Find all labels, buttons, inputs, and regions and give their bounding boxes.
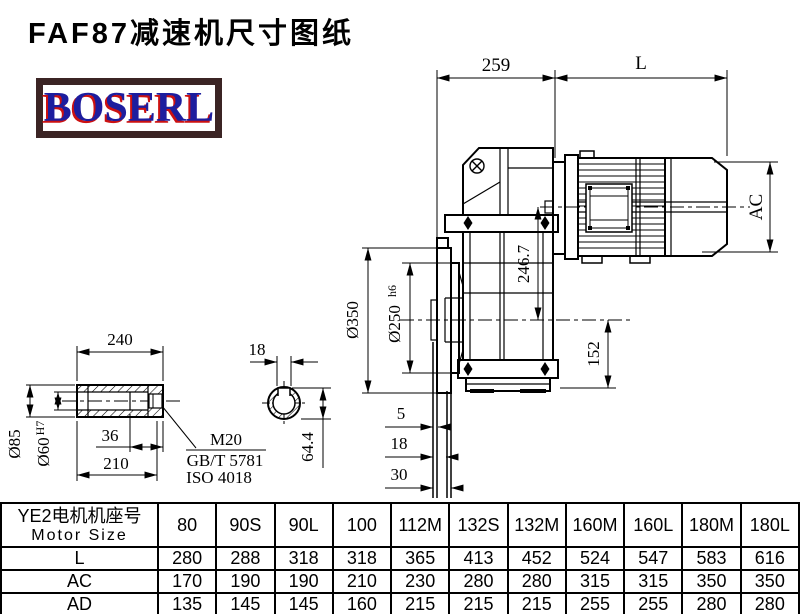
table-row: AC170190190210230280280315315350350 <box>1 570 799 593</box>
lifting-eye-icon <box>470 159 484 173</box>
table-cell: 190 <box>216 570 274 593</box>
table-column-header: 160L <box>624 503 682 547</box>
table-cell: 524 <box>566 547 624 570</box>
dim-AC: AC <box>746 194 767 220</box>
table-column-header: 180L <box>741 503 799 547</box>
table-column-header: 160M <box>566 503 624 547</box>
table-cell: 210 <box>333 570 391 593</box>
table-cell: 452 <box>508 547 566 570</box>
table-cell: 350 <box>682 570 740 593</box>
table-cell: 318 <box>275 547 333 570</box>
table-cell: 215 <box>391 593 449 614</box>
table-column-header: 132S <box>449 503 507 547</box>
table-cell: 255 <box>624 593 682 614</box>
dim-246-7: 246.7 <box>514 244 533 283</box>
table-row: L280288318318365413452524547583616 <box>1 547 799 570</box>
table-cell: 583 <box>682 547 740 570</box>
table-cell: 255 <box>566 593 624 614</box>
table-cell: 160 <box>333 593 391 614</box>
dim-keyway-width: 18 <box>249 340 266 359</box>
table-cell: 350 <box>741 570 799 593</box>
main-view-dimensions <box>362 70 778 488</box>
table-cell: 215 <box>508 593 566 614</box>
table-cell: 280 <box>682 593 740 614</box>
table-cell: 230 <box>391 570 449 593</box>
thread-label: M20 <box>210 430 242 449</box>
table-cell: 215 <box>449 593 507 614</box>
table-column-header: 90L <box>275 503 333 547</box>
table-column-header: 80 <box>158 503 216 547</box>
table-cell: 616 <box>741 547 799 570</box>
table-cell: 190 <box>275 570 333 593</box>
table-cell: 280 <box>508 570 566 593</box>
motor-nameplate <box>586 184 632 232</box>
table-column-header: 112M <box>391 503 449 547</box>
dim-flange-od: Ø350 <box>343 301 362 339</box>
table-cell: 547 <box>624 547 682 570</box>
dim-210: 210 <box>103 454 129 473</box>
table-cell: 280 <box>741 593 799 614</box>
output-shaft-hidden-lines <box>433 342 451 498</box>
dim-bore: Ø60 <box>34 437 53 466</box>
dim-152: 152 <box>584 341 603 367</box>
table-row: AD135145145160215215215255255280280 <box>1 593 799 614</box>
table-cell: 315 <box>566 570 624 593</box>
dim-bore-tol: H7 <box>33 421 47 436</box>
table-cell: 135 <box>158 593 216 614</box>
bolt-marks <box>464 216 550 376</box>
table-cell: 145 <box>275 593 333 614</box>
table-cell: 315 <box>624 570 682 593</box>
table-column-header: 100 <box>333 503 391 547</box>
dim-L: L <box>635 53 647 74</box>
table-row-label: AC <box>1 570 158 593</box>
table-row-header-en: Motor Size <box>2 527 157 545</box>
dim-36: 36 <box>102 426 119 445</box>
table-cell: 280 <box>449 570 507 593</box>
table-column-header: 180M <box>682 503 740 547</box>
standard-iso-label: ISO 4018 <box>186 468 252 487</box>
page: FAF87减速机尺寸图纸 BOSERL <box>0 0 800 614</box>
table-cell: 170 <box>158 570 216 593</box>
table-row-header: YE2电机机座号Motor Size <box>1 503 158 547</box>
output-flange <box>431 238 463 498</box>
table-cell: 280 <box>158 547 216 570</box>
dim-keyway-depth: 64.4 <box>298 432 317 462</box>
table-column-header: 132M <box>508 503 566 547</box>
dim-240: 240 <box>107 330 133 349</box>
table-header-row: YE2电机机座号Motor Size8090S90L100112M132S132… <box>1 503 799 547</box>
motor-size-table: YE2电机机座号Motor Size8090S90L100112M132S132… <box>0 502 800 614</box>
centerlines <box>62 207 750 425</box>
dim-spigot-tol: h6 <box>385 285 399 297</box>
dim-18-offset: 18 <box>391 434 408 453</box>
dim-259: 259 <box>482 55 511 76</box>
table-row-label: AD <box>1 593 158 614</box>
table-cell: 288 <box>216 547 274 570</box>
table-cell: 145 <box>216 593 274 614</box>
table-column-header: 90S <box>216 503 274 547</box>
dim-spigot: Ø250 <box>385 305 404 343</box>
table-cell: 365 <box>391 547 449 570</box>
table-cell: 318 <box>333 547 391 570</box>
hollow-shaft-dimension-labels: 240 Ø85 Ø60 H7 36 210 M20 GB/T 5781 ISO … <box>5 330 263 487</box>
dim-30: 30 <box>391 465 408 484</box>
table-row-label: L <box>1 547 158 570</box>
table-cell: 413 <box>449 547 507 570</box>
dim-5: 5 <box>397 404 406 423</box>
dim-hub-od: Ø85 <box>5 429 24 458</box>
table-row-header-cn: YE2电机机座号 <box>2 506 157 527</box>
shaft-section-view <box>268 387 300 419</box>
